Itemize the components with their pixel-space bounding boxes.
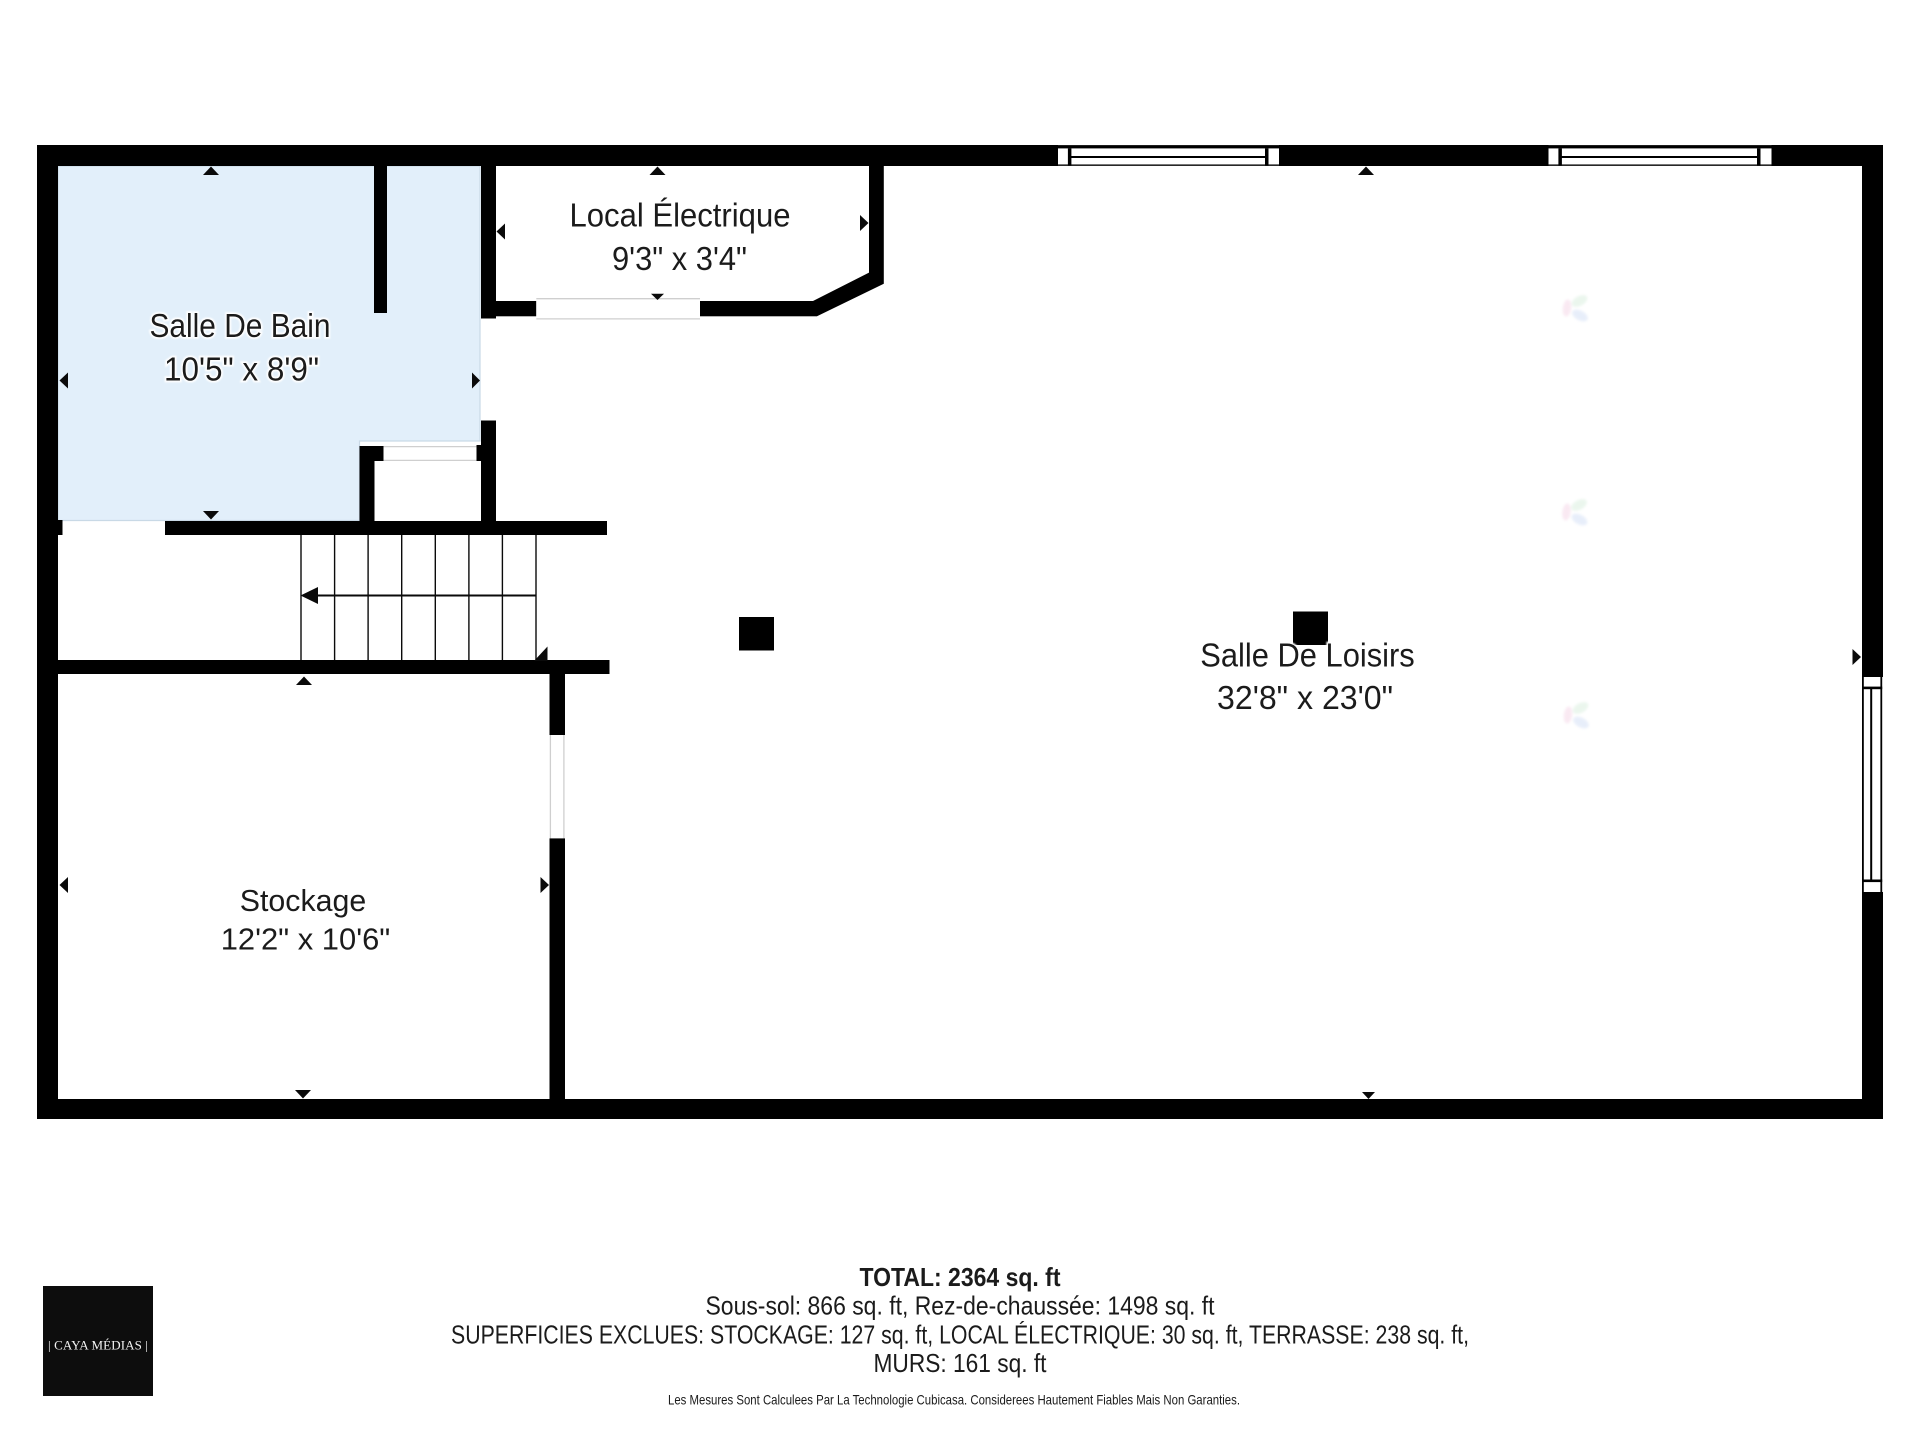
svg-text:32'8" x 23'0": 32'8" x 23'0" bbox=[1217, 679, 1393, 716]
svg-text:TOTAL: 2364 sq. ft: TOTAL: 2364 sq. ft bbox=[860, 1262, 1061, 1292]
svg-text:Salle De Loisirs: Salle De Loisirs bbox=[1200, 636, 1415, 673]
svg-text:| CAYA MÉDIAS |: | CAYA MÉDIAS | bbox=[48, 1338, 148, 1353]
svg-text:Sous-sol: 866 sq. ft, Rez-de-c: Sous-sol: 866 sq. ft, Rez-de-chaussée: 1… bbox=[706, 1291, 1216, 1321]
svg-text:SUPERFICIES EXCLUES: STOCKAGE:: SUPERFICIES EXCLUES: STOCKAGE: 127 sq. f… bbox=[451, 1320, 1469, 1350]
svg-text:12'2" x 10'6": 12'2" x 10'6" bbox=[221, 922, 391, 957]
svg-text:9'3" x 3'4": 9'3" x 3'4" bbox=[612, 240, 747, 277]
svg-text:Local Électrique: Local Électrique bbox=[570, 196, 791, 233]
svg-text:Stockage: Stockage bbox=[240, 883, 367, 918]
svg-text:MURS: 161 sq. ft: MURS: 161 sq. ft bbox=[874, 1348, 1048, 1378]
svg-text:Salle De Bain: Salle De Bain bbox=[150, 307, 331, 344]
svg-text:Les Mesures Sont Calculees Par: Les Mesures Sont Calculees Par La Techno… bbox=[668, 1392, 1240, 1408]
svg-text:10'5" x 8'9": 10'5" x 8'9" bbox=[164, 351, 319, 388]
